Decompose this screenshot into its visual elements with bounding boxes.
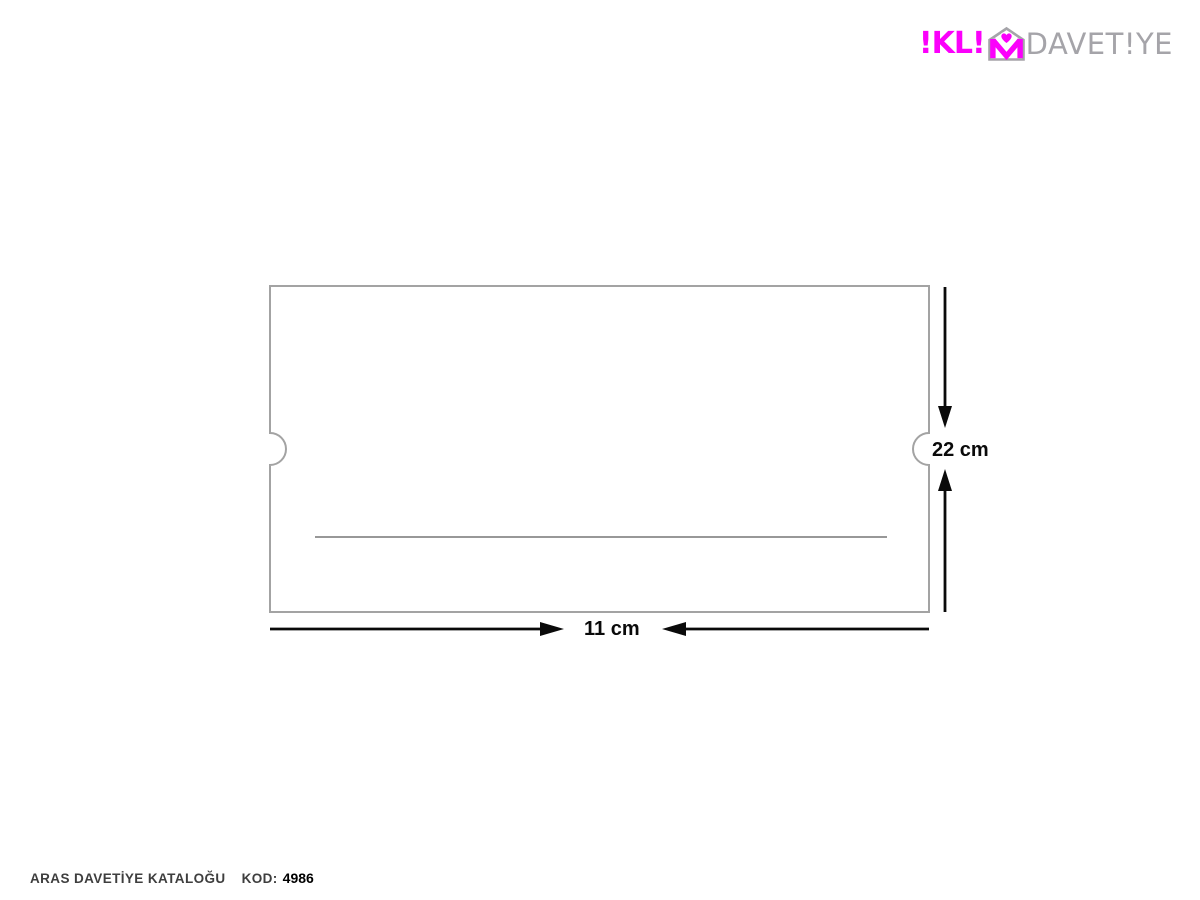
dimension-label-height: 22 cm: [932, 439, 989, 461]
card-outline: [270, 286, 929, 612]
catalog-title: ARAS DAVETİYE KATALOĞU: [30, 871, 226, 886]
dimension-label-width: 11 cm: [584, 618, 640, 640]
code-value: 4986: [283, 870, 314, 886]
page: !KL! DAVET!YE: [0, 0, 1200, 900]
height-arrow-up: [938, 469, 952, 612]
footer-catalog-info: ARAS DAVETİYE KATALOĞU KOD: 4986: [30, 870, 314, 886]
width-arrow-right: [270, 622, 564, 636]
envelope-card-diagram: [0, 0, 1200, 900]
width-arrow-left: [662, 622, 929, 636]
code-label: KOD:: [242, 871, 278, 886]
height-arrow-down: [938, 287, 952, 428]
